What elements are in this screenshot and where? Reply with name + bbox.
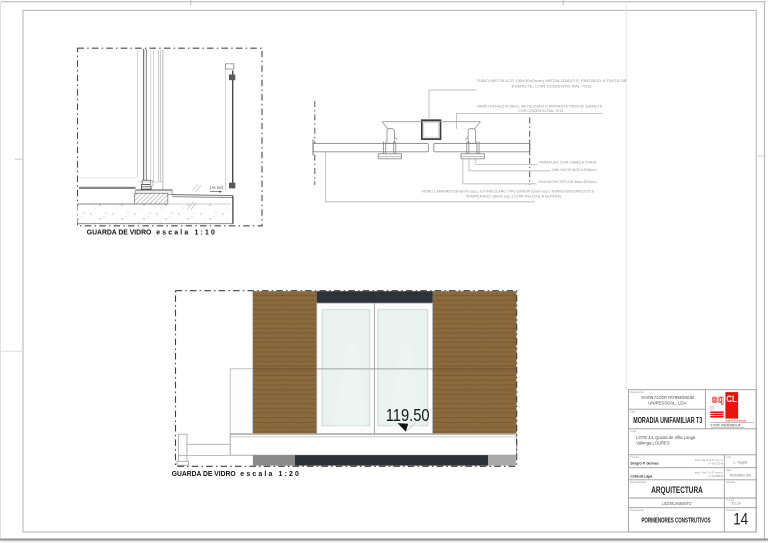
svg-text:Requerente: Requerente <box>630 390 644 394</box>
svg-text:ANILHA EM TEFLON 4mm Ø13mm: ANILHA EM TEFLON 4mm Ø13mm <box>539 180 597 184</box>
svg-text:UNIPESSOAL, LDA: UNIPESSOAL, LDA <box>648 400 686 405</box>
svg-text:1% incl.: 1% incl. <box>210 185 225 190</box>
svg-text:ARQUITECTURA: ARQUITECTURA <box>651 485 703 495</box>
svg-text:Célia da Lápa: Célia da Lápa <box>630 474 652 478</box>
svg-text:Data: Data <box>726 468 732 472</box>
svg-text:COR CINZENTO RAL 7011: COR CINZENTO RAL 7011 <box>518 109 563 113</box>
svg-text:Especialidade: Especialidade <box>630 480 647 484</box>
svg-text:VIDRO LAMINADO (8+8mm esp.), E: VIDRO LAMINADO (8+8mm esp.), EXTRA CLARO… <box>422 189 596 193</box>
svg-text:GUARDA DE VIDRO: GUARDA DE VIDRO <box>172 469 236 478</box>
svg-text:Obra: Obra <box>630 409 636 413</box>
svg-text:escala 1:10: escala 1:10 <box>156 230 215 237</box>
svg-text:TEMPERADO (6mm esp.) COM PELÍC: TEMPERADO (6mm esp.) COM PELÍCULA BUTIRA… <box>466 195 562 199</box>
svg-text:GUARDA DE VIDRO: GUARDA DE VIDRO <box>87 228 152 237</box>
svg-text:VARÃO EM AÇO Ø 25mm, METALIZAD: VARÃO EM AÇO Ø 25mm, METALIZADO E PINTAD… <box>477 103 604 108</box>
svg-text:2/1:20: 2/1:20 <box>731 502 741 506</box>
svg-text:MORADIA UNIFAMILIAR T3: MORADIA UNIFAMILIAR T3 <box>633 416 702 425</box>
svg-text:ANILHA DE MOLA Ø16mm: ANILHA DE MOLA Ø16mm <box>552 168 596 172</box>
svg-text:c. Tágide: c. Tágide <box>734 460 748 464</box>
svg-text:sq: sq <box>712 394 724 405</box>
svg-text:projecto & construção: projecto & construção <box>725 418 746 422</box>
svg-text:Valonga LOURES: Valonga LOURES <box>636 441 670 446</box>
svg-text:Escalas: Escalas <box>726 480 736 484</box>
svg-text:119.50: 119.50 <box>386 406 430 425</box>
svg-text:Sérgio P. Gomes: Sérgio P. Gomes <box>630 461 658 465</box>
svg-text:CL: CL <box>726 394 737 405</box>
svg-text:PORMENORES CONSTRUTIVOS: PORMENORES CONSTRUTIVOS <box>641 515 710 524</box>
svg-text:ESMALTE, COR CINZENTO RAL 7011: ESMALTE, COR CINZENTO RAL 7011 <box>512 85 592 89</box>
svg-text:escala 1:20: escala 1:20 <box>240 471 299 478</box>
svg-text:TUBO METÁLICO (30x30x2mm) META: TUBO METÁLICO (30x30x2mm) METALIZADO E P… <box>476 79 628 83</box>
svg-text:Designação: Designação <box>630 508 644 512</box>
svg-text:Local: Local <box>630 429 637 433</box>
svg-text:Lote: Lote <box>726 455 732 459</box>
svg-text:14: 14 <box>733 509 748 528</box>
svg-text:Técnico: Técnico <box>630 455 640 459</box>
svg-text:nº 66752-B: nº 66752-B <box>709 462 723 466</box>
svg-text:e-mail: sqcl@sapo.pt: e-mail: sqcl@sapo.pt <box>711 423 741 427</box>
svg-text:VISION FLOOR PATRIMONIUM: VISION FLOOR PATRIMONIUM <box>641 395 695 400</box>
svg-text:PARAFUSO COM CABEÇA CHATA: PARAFUSO COM CABEÇA CHATA <box>539 160 597 164</box>
svg-text:LICENCIAMENTO: LICENCIAMENTO <box>662 501 692 506</box>
svg-text:nº 10096-B: nº 10096-B <box>709 474 723 478</box>
svg-text:LOTE 44, Quinta de Villa Longa: LOTE 44, Quinta de Villa Longa <box>636 435 696 440</box>
svg-text:NOVEMBRO 2020: NOVEMBRO 2020 <box>730 473 752 477</box>
